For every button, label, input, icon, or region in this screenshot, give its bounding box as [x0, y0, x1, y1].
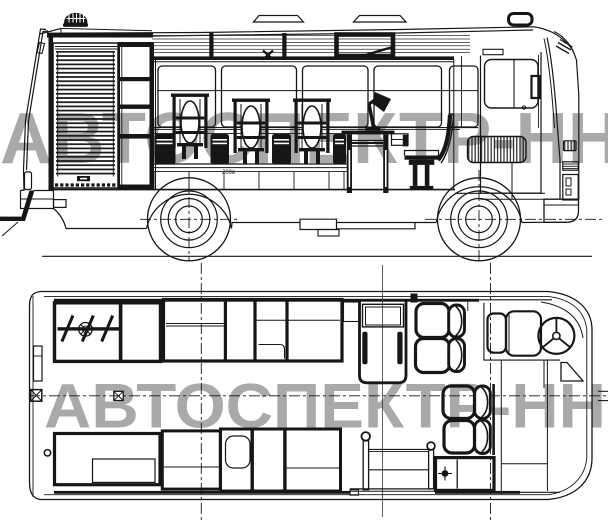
svg-text:289в: 289в: [222, 170, 235, 176]
svg-text:АВТОСПЕКТР-НН: АВТОСПЕКТР-НН: [44, 372, 606, 442]
